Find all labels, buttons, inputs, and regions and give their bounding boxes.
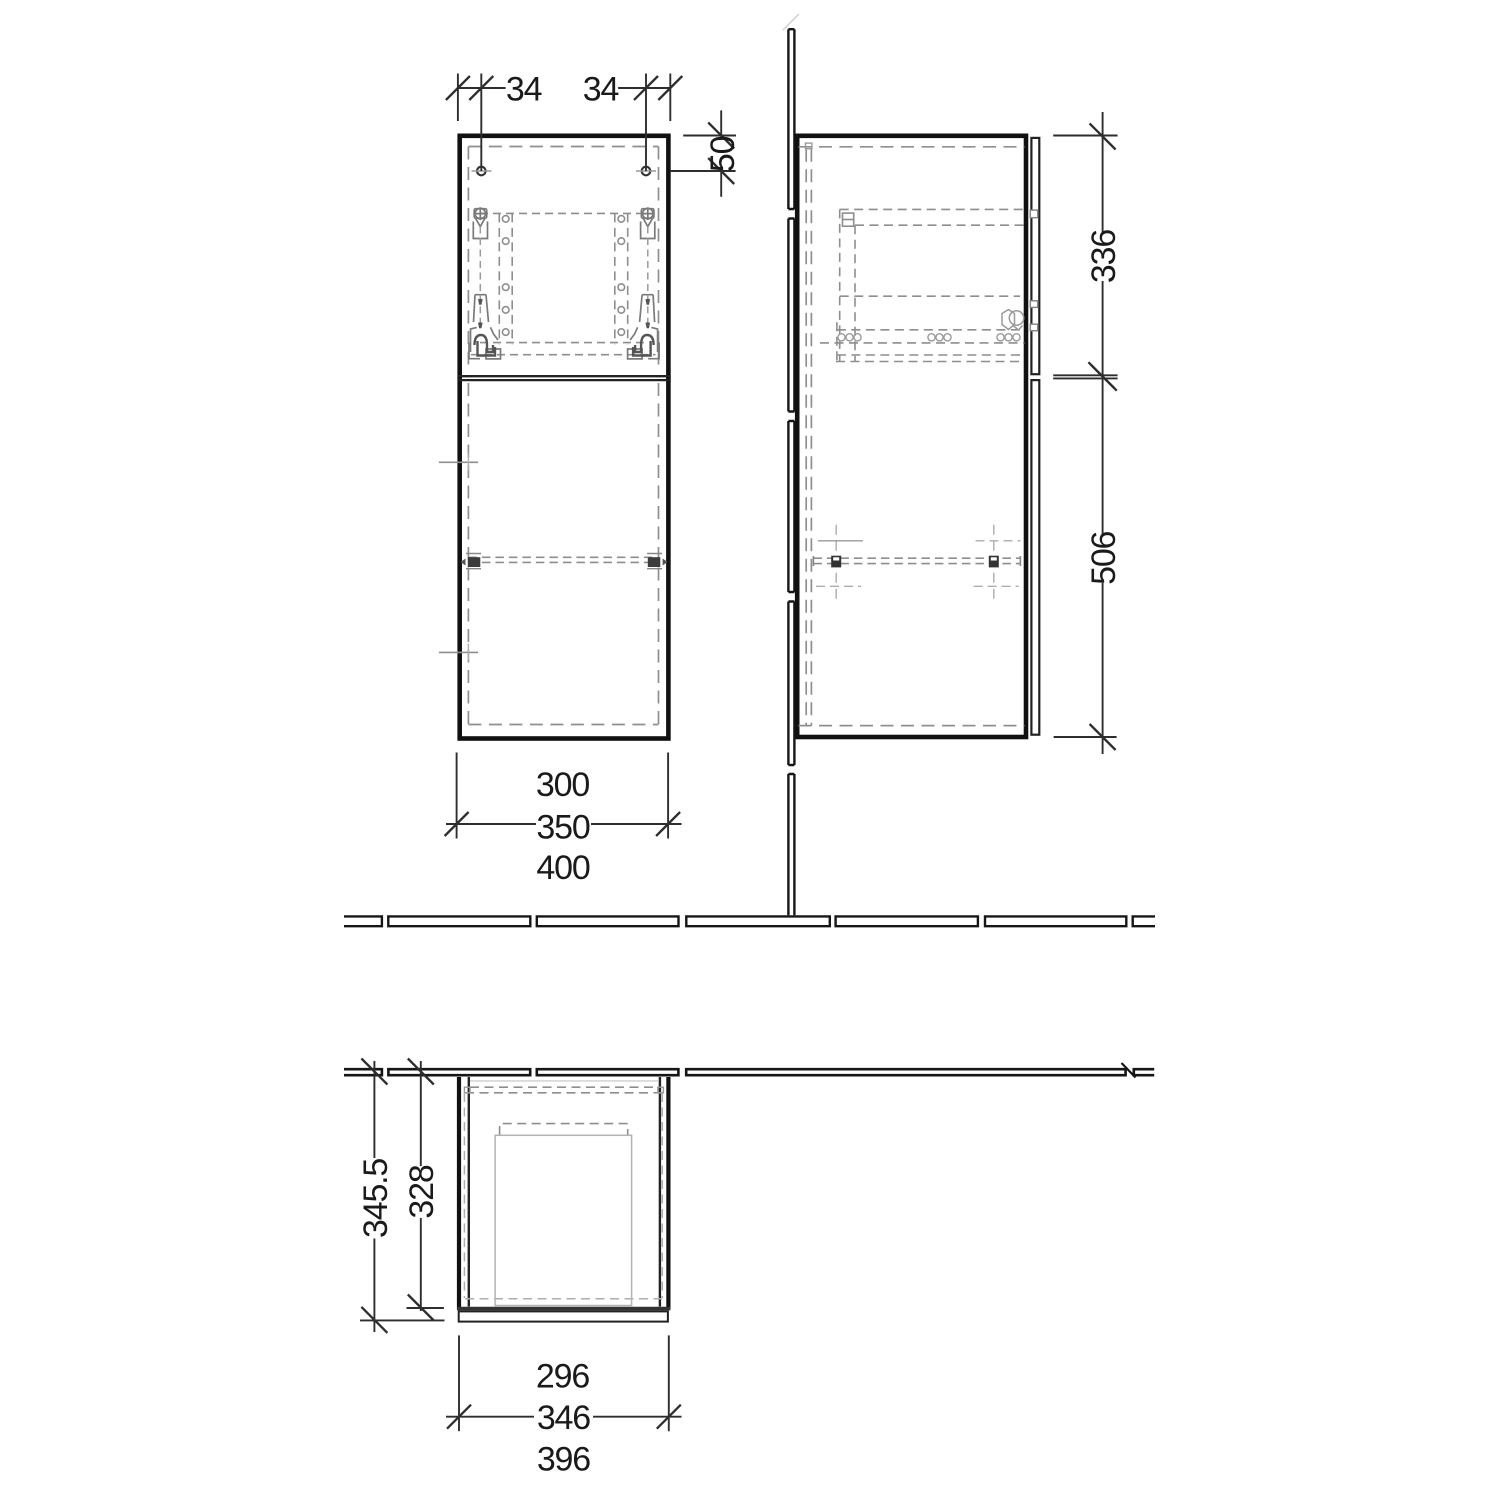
svg-text:396: 396 (537, 1441, 590, 1479)
svg-text:400: 400 (536, 849, 589, 887)
svg-text:506: 506 (1085, 531, 1123, 584)
svg-text:34: 34 (583, 70, 619, 108)
svg-text:336: 336 (1085, 230, 1123, 283)
svg-text:345.5: 345.5 (357, 1159, 395, 1238)
svg-text:328: 328 (403, 1165, 441, 1218)
svg-text:34: 34 (506, 70, 542, 108)
svg-text:346: 346 (537, 1399, 590, 1437)
svg-text:50: 50 (704, 136, 742, 172)
svg-text:300: 300 (536, 766, 589, 804)
svg-text:350: 350 (536, 808, 589, 846)
svg-text:296: 296 (536, 1358, 589, 1396)
